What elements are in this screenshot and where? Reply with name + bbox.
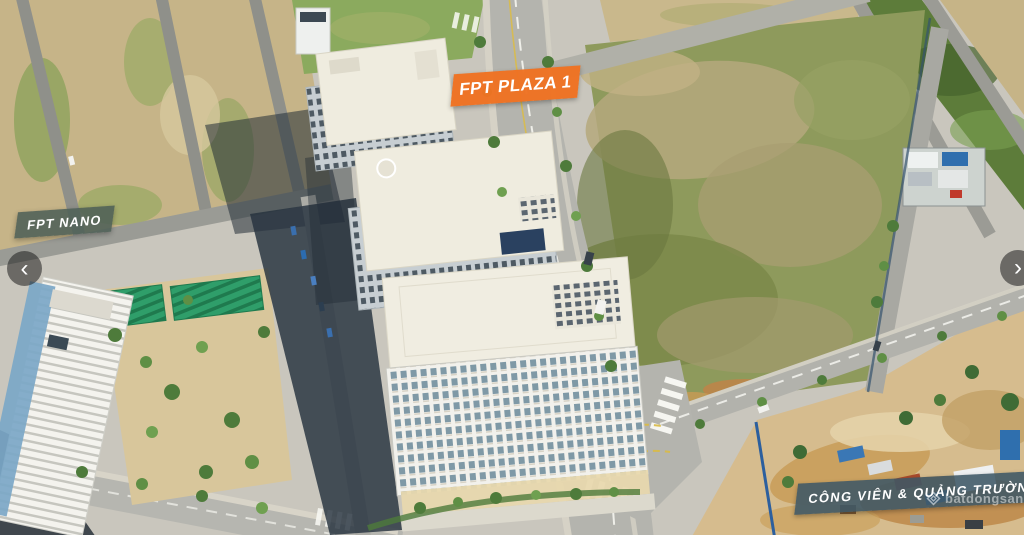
batdongsan-watermark-text: batdongsan — [945, 491, 1024, 506]
label-fpt-nano-text: FPT NANO — [26, 212, 102, 232]
chevron-left-icon: ‹ — [21, 257, 29, 281]
utility-building — [296, 8, 330, 54]
storage-compound — [903, 148, 985, 206]
chevron-right-icon: › — [1014, 256, 1022, 280]
prev-photo-button[interactable]: ‹ — [7, 251, 42, 286]
batdongsan-diamond-icon — [926, 491, 941, 506]
photo-viewer: FPT PLAZA 1 FPT NANO CÔNG VIÊN & QUẢNG T… — [0, 0, 1024, 535]
label-fpt-plaza-1-text: FPT PLAZA 1 — [458, 72, 572, 100]
batdongsan-watermark: batdongsan — [926, 491, 1024, 506]
